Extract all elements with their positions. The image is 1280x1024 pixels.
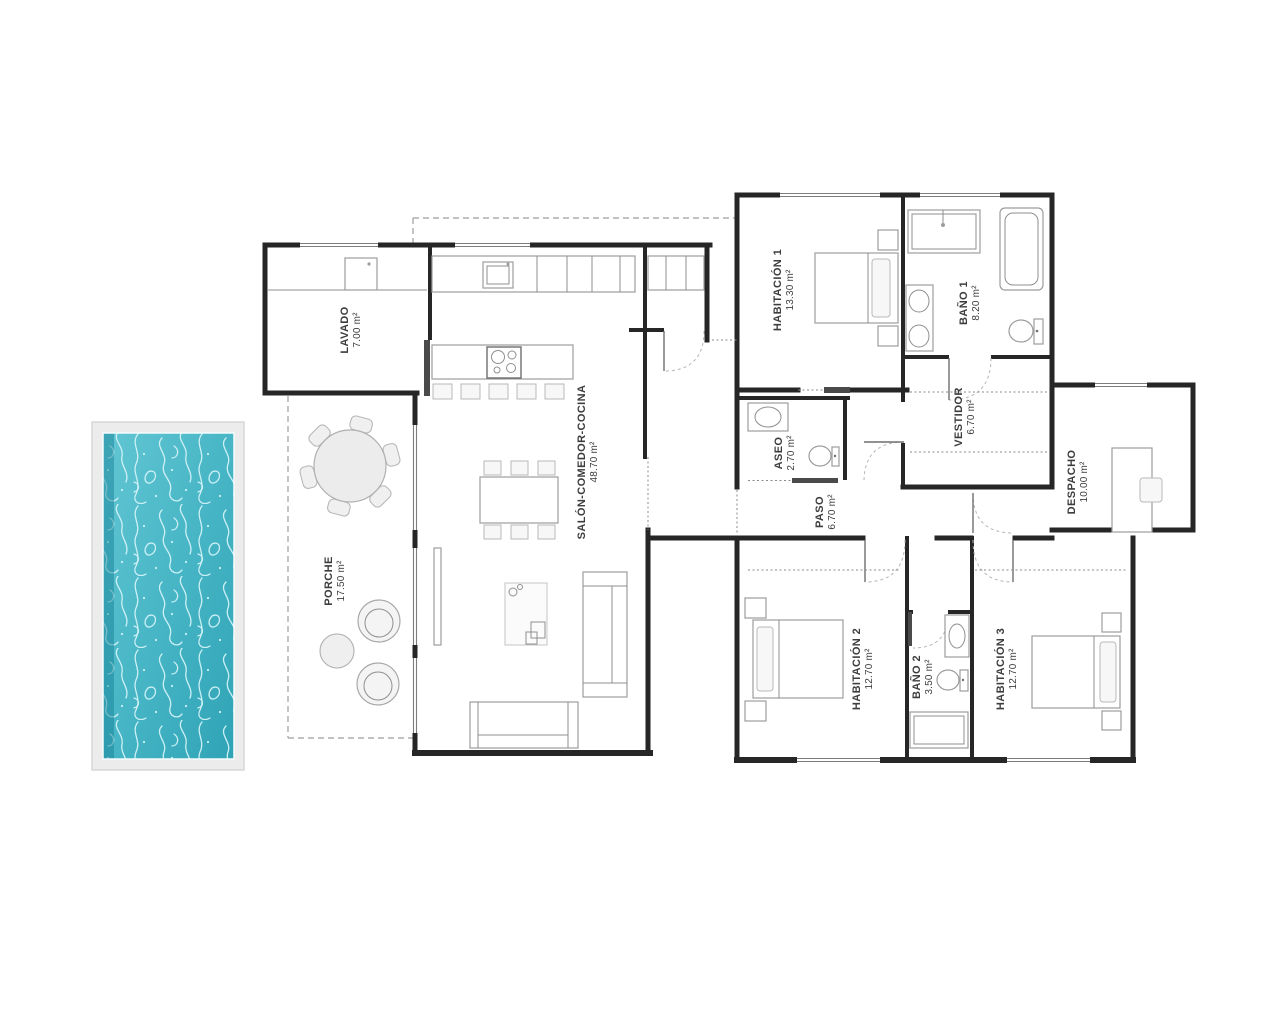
- window-kitchen: [455, 240, 530, 250]
- bathtub: [1000, 208, 1043, 290]
- furniture-living: [434, 548, 627, 748]
- window-porch-sliding: [411, 425, 419, 733]
- pillow: [872, 259, 890, 317]
- svg-text:SALÓN-COMEDOR-COCINA: SALÓN-COMEDOR-COCINA: [575, 385, 588, 540]
- svg-text:48.70 m²: 48.70 m²: [589, 441, 600, 483]
- sideboard: [434, 548, 441, 645]
- dining-table: [480, 477, 558, 523]
- porch-dining-set: [299, 415, 401, 517]
- shower-2: [910, 712, 968, 748]
- island-stools: [433, 384, 564, 399]
- svg-text:13.30 m²: 13.30 m²: [785, 269, 796, 311]
- svg-text:6.70 m²: 6.70 m²: [827, 494, 838, 530]
- door-entry: [664, 331, 704, 371]
- room-label-bano2: BAÑO 2 3.50 m²: [910, 655, 935, 699]
- furniture-porche: [299, 415, 401, 705]
- svg-text:ASEO: ASEO: [773, 437, 785, 470]
- svg-text:BAÑO 2: BAÑO 2: [910, 655, 923, 699]
- door-despacho: [973, 493, 1013, 533]
- lounge-chair: [357, 663, 399, 705]
- sofa-east: [583, 572, 627, 697]
- svg-text:6.70 m²: 6.70 m²: [966, 399, 977, 435]
- door-habitacion3: [973, 540, 1013, 582]
- sofa-south: [470, 702, 578, 748]
- furniture-habitacion1: [815, 230, 898, 346]
- pillow: [757, 627, 773, 691]
- svg-text:3.50 m²: 3.50 m²: [924, 659, 935, 695]
- room-label-paso: PASO 6.70 m²: [814, 494, 838, 530]
- svg-text:12.70 m²: 12.70 m²: [1008, 648, 1019, 690]
- furniture-dining: [480, 461, 558, 539]
- pool-caustics: [103, 433, 234, 759]
- window-habitacion3: [1007, 755, 1090, 765]
- svg-text:PORCHE: PORCHE: [323, 556, 335, 605]
- furniture-lavado: [268, 258, 427, 290]
- room-label-habitacion3: HABITACIÓN 3 12.70 m²: [994, 628, 1019, 710]
- side-table: [320, 634, 354, 668]
- room-label-despacho: DESPACHO 10.00 m²: [1066, 450, 1090, 515]
- svg-text:HABITACIÓN 2: HABITACIÓN 2: [850, 628, 863, 710]
- floor-plan-page: LAVADO 7.00 m² SALÓN-COMEDOR-COCINA 48.7…: [0, 0, 1280, 1024]
- svg-text:VESTIDOR: VESTIDOR: [953, 387, 965, 446]
- room-label-bano1: BAÑO 1 8.20 m²: [957, 281, 982, 325]
- svg-text:17.50 m²: 17.50 m²: [336, 560, 347, 602]
- sliding-door-lavado: [424, 340, 430, 396]
- furniture-habitacion3: [1032, 613, 1121, 730]
- svg-text:7.00 m²: 7.00 m²: [352, 312, 363, 348]
- room-label-aseo: ASEO 2.70 m²: [773, 435, 797, 471]
- shower-1: [908, 210, 980, 253]
- window-habitacion2: [797, 755, 880, 765]
- svg-text:8.20 m²: 8.20 m²: [971, 285, 982, 321]
- nightstand: [1102, 613, 1121, 632]
- pool-deep-edge: [103, 433, 114, 759]
- room-label-vestidor: VESTIDOR 6.70 m²: [953, 387, 977, 446]
- nightstand: [878, 326, 898, 346]
- furniture-bano1: [906, 208, 1043, 351]
- pool: [92, 422, 244, 770]
- sliding-door-aseo: [748, 478, 838, 483]
- room-label-lavado: LAVADO 7.00 m²: [339, 306, 363, 353]
- room-label-salon: SALÓN-COMEDOR-COCINA 48.70 m²: [575, 385, 600, 540]
- nightstand: [745, 598, 766, 618]
- sliding-door-habitacion1: [798, 387, 850, 393]
- window-lavado: [300, 240, 378, 250]
- round-table: [314, 430, 386, 502]
- window-bano1: [920, 190, 1000, 200]
- desk-chair: [1140, 478, 1162, 502]
- svg-text:10.00 m²: 10.00 m²: [1079, 461, 1090, 503]
- nightstand: [745, 701, 766, 721]
- pantry-cabinets: [648, 256, 704, 290]
- toilet-1: [1009, 319, 1043, 344]
- window-despacho: [1095, 380, 1147, 390]
- svg-text:HABITACIÓN 1: HABITACIÓN 1: [771, 249, 784, 331]
- door-habitacion2: [865, 540, 905, 582]
- furniture-habitacion2: [745, 598, 843, 721]
- furniture-kitchen: [432, 256, 704, 399]
- toilet-2: [937, 670, 968, 691]
- door-bano2: [908, 612, 948, 648]
- svg-text:LAVADO: LAVADO: [339, 306, 351, 353]
- svg-text:DESPACHO: DESPACHO: [1066, 450, 1078, 515]
- svg-text:BAÑO 1: BAÑO 1: [957, 281, 970, 325]
- pillow: [1100, 642, 1116, 702]
- door-vestidor: [864, 442, 904, 482]
- svg-text:2.70 m²: 2.70 m²: [786, 435, 797, 471]
- furniture-despacho: [1112, 448, 1162, 532]
- svg-text:HABITACIÓN 3: HABITACIÓN 3: [994, 628, 1007, 710]
- nightstand: [1102, 711, 1121, 730]
- washing-machine: [345, 258, 377, 290]
- window-habitacion1: [780, 190, 880, 200]
- svg-text:PASO: PASO: [814, 496, 826, 528]
- porch-lounge-set: [320, 600, 400, 705]
- room-label-porche: PORCHE 17.50 m²: [323, 556, 347, 605]
- lounge-chair: [358, 600, 400, 642]
- svg-text:12.70 m²: 12.70 m²: [864, 648, 875, 690]
- nightstand: [878, 230, 898, 250]
- kitchen-counter: [432, 256, 635, 292]
- toilet-aseo: [809, 446, 839, 466]
- room-label-habitacion1: HABITACIÓN 1 13.30 m²: [771, 249, 796, 331]
- room-label-habitacion2: HABITACIÓN 2 12.70 m²: [850, 628, 875, 710]
- floor-plan-canvas: LAVADO 7.00 m² SALÓN-COMEDOR-COCINA 48.7…: [0, 0, 1280, 1024]
